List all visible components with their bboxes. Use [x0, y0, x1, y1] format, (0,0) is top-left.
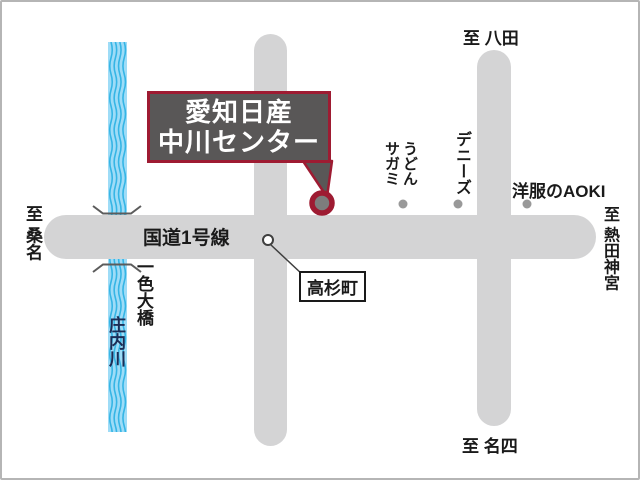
dealer-callout: 愛知日産 中川センター [147, 91, 331, 163]
dealer-name-line2: 中川センター [158, 127, 320, 157]
landmark-label-dennys: デニーズ [449, 131, 473, 201]
intersection-circle-icon [263, 235, 273, 245]
map: 愛知日産 中川センター 国道1号線 高杉町 至 八田 至 名四 至 桑名 至 熱… [0, 0, 640, 480]
direction-label-meishi: 至 名四 [462, 432, 518, 457]
landmark-label-udon-sagami: うどん サガミ [382, 141, 418, 205]
intersection-label-takasugicho: 高杉町 [299, 271, 366, 302]
direction-label-kuwana: 至 桑名 [20, 205, 45, 280]
map-marks-layer [0, 0, 640, 480]
direction-label-hatta: 至 八田 [463, 24, 519, 49]
landmark-label-aoki: 洋服のAOKI [512, 177, 606, 202]
route1-road-label: 国道1号線 [143, 223, 230, 250]
bridge-mark-icon [93, 206, 141, 214]
direction-label-atsuta-jingu: 至 熱田神宮 [597, 206, 621, 316]
river-label-shonaigawa: 庄内川 [103, 316, 128, 380]
destination-marker-icon [312, 193, 332, 213]
dealer-name-line1: 愛知日産 [185, 97, 293, 127]
bridge-label-isshiki-ohashi: 一色大橋 [131, 258, 156, 338]
